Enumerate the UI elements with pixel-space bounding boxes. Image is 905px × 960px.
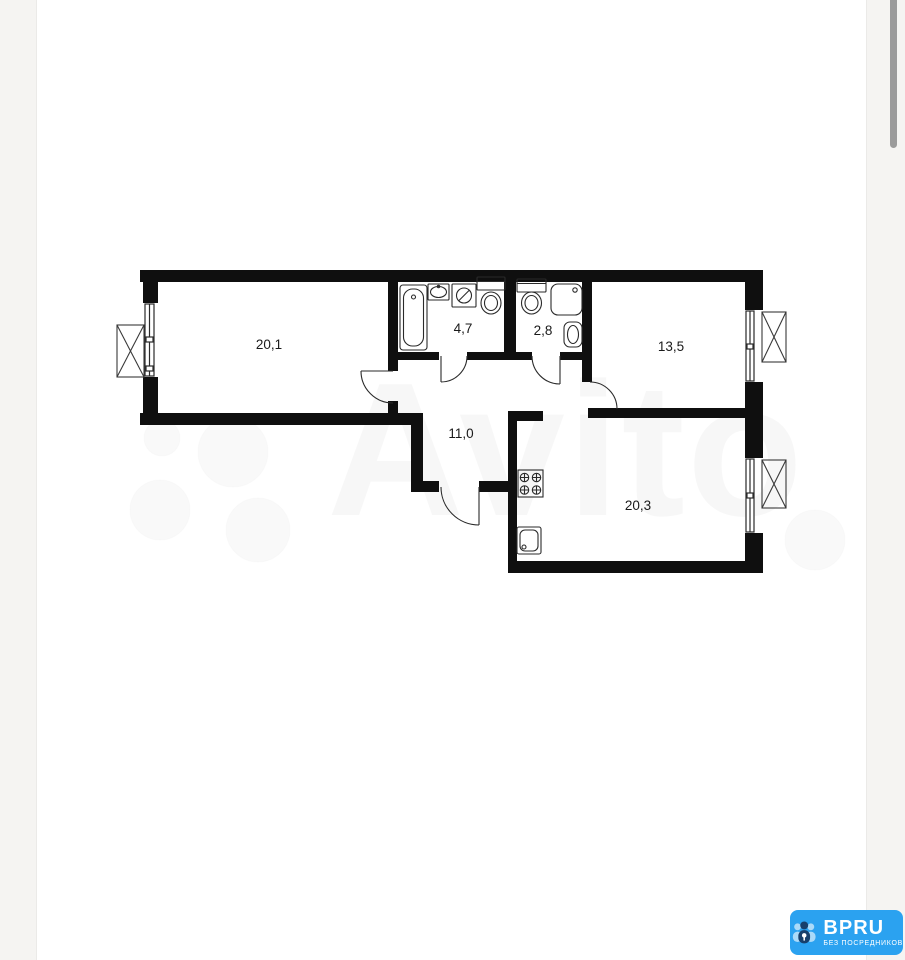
room-label-bedroom: 13,5 <box>658 339 684 354</box>
toilet-icon <box>517 279 546 314</box>
room-label-living: 20,1 <box>256 337 282 352</box>
room-label-wc: 2,8 <box>534 323 553 338</box>
bpru-badge: BPRU БЕЗ ПОСРЕДНИКОВ <box>790 910 903 955</box>
stove-icon <box>518 470 543 497</box>
people-lock-icon <box>790 918 818 948</box>
door-swings <box>361 356 617 525</box>
floor-plan-drawing: 20,1 4,7 2,8 13,5 11,0 20,3 <box>0 0 905 960</box>
bathtub-icon <box>400 285 427 350</box>
room-label-hall: 11,0 <box>448 426 473 441</box>
toilet-icon <box>477 277 505 314</box>
watermark-circles <box>130 417 845 570</box>
room-label-kitchen: 20,3 <box>625 498 651 513</box>
badge-subtitle: БЕЗ ПОСРЕДНИКОВ <box>823 940 903 947</box>
room-label-bath: 4,7 <box>454 321 473 336</box>
badge-text: BPRU БЕЗ ПОСРЕДНИКОВ <box>823 918 903 947</box>
kitchen-sink-icon <box>517 527 541 554</box>
badge-title: BPRU <box>823 918 884 938</box>
washing-machine-icon <box>452 284 476 307</box>
shower-tray-icon <box>551 284 582 315</box>
washbasin-icon <box>564 322 582 347</box>
sink-icon <box>428 284 449 300</box>
scrollbar-thumb[interactable] <box>890 0 897 148</box>
